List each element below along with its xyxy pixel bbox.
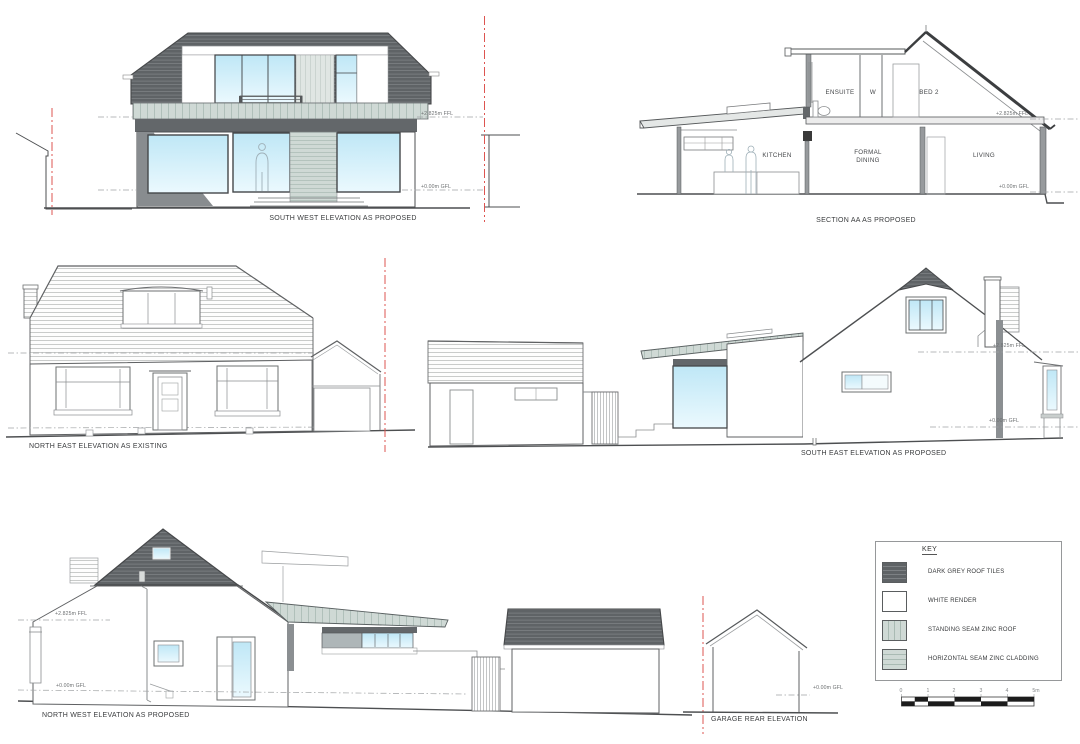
scale-tick-label: 2 [953, 688, 956, 694]
dormer-fascia [182, 46, 388, 55]
room-label-kitchen: KITCHEN [762, 152, 791, 159]
garage-dark-roof [504, 609, 664, 645]
flat-roof-upstand [785, 48, 791, 56]
garage-door [314, 388, 370, 431]
room-label-formal-dining: DINING [856, 157, 879, 164]
scale-tick-label: 4 [1006, 688, 1009, 694]
ffl-level-label: +2.825m FFL [421, 111, 453, 117]
south-west-elevation-title: SOUTH WEST ELEVATION AS PROPOSED [269, 215, 416, 222]
rooflight [153, 548, 170, 559]
white-band [322, 648, 417, 654]
kitchen-counter [714, 172, 799, 194]
ground-line [637, 194, 1064, 203]
south-west-elevation-drawing [16, 16, 520, 222]
slatted-gate [472, 657, 500, 711]
living-door [927, 137, 945, 194]
gutter-end-left [123, 75, 133, 79]
chimney-cap [23, 285, 38, 289]
room-label-ensuite: ENSUITE [826, 89, 855, 96]
scale-tick-label: 5m [1032, 688, 1039, 694]
toilet [813, 101, 830, 117]
side-door-unit [217, 637, 255, 700]
key-item-label: HORIZONTAL SEAM ZINC CLADDING [928, 656, 1039, 662]
grey-corner-column [287, 624, 294, 671]
bay-window-right [215, 366, 280, 416]
dark-fascia [322, 627, 417, 633]
north-east-elevation-drawing [6, 258, 415, 452]
garage-rear-elevation-title: GARAGE REAR ELEVATION [711, 716, 808, 723]
north-east-elevation-title: NORTH EAST ELEVATION AS EXISTING [29, 443, 168, 450]
bed2-door [893, 64, 919, 117]
garage-rear-elevation-drawing [683, 596, 838, 734]
extension-glazed-window [673, 366, 727, 428]
standing-seam-zinc-band [133, 103, 428, 119]
kitchen-clerestory-window [684, 137, 733, 150]
ffl-level-label: +2.825m FFL [996, 111, 1028, 117]
north-west-elevation-title: NORTH WEST ELEVATION AS PROPOSED [42, 712, 190, 719]
dark-fascia [673, 359, 727, 366]
standing-seam-zinc-roof-swatch [882, 620, 907, 641]
key-item-label: WHITE RENDER [928, 598, 977, 604]
side-window [154, 641, 183, 666]
flat-roof [787, 49, 905, 54]
dark-grey-roof-tiles-swatch [882, 562, 907, 583]
white-render-swatch [882, 591, 907, 612]
scale-bar [902, 694, 1035, 706]
extension-wall [727, 336, 803, 437]
gfl-level-label: +0.00m GFL [999, 184, 1029, 190]
front-door [149, 371, 191, 430]
slatted-gate [592, 392, 618, 444]
ffl-level-label: +2.825m FFL [993, 343, 1025, 349]
first-floor-slab [806, 117, 1044, 124]
south-east-elevation-drawing [428, 268, 1078, 447]
neighbour-outline-right [481, 135, 520, 207]
upper-gable-window [906, 297, 946, 333]
key-item-label: STANDING SEAM ZINC ROOF [928, 627, 1017, 633]
ground-window-right [337, 133, 400, 192]
room-label-formal-dining: FORMAL [854, 149, 882, 156]
key-row: WHITE RENDER [882, 591, 1057, 613]
scale-tick-label: 3 [980, 688, 983, 694]
gfl-level-label: +0.00m GFL [421, 184, 451, 190]
ffl-level-label: +2.825m FFL [55, 611, 87, 617]
ground-window-left [148, 135, 228, 193]
key-item-label: DARK GREY ROOF TILES [928, 569, 1004, 575]
roof-vent [139, 571, 145, 582]
horizontal-seam-zinc-cladding-swatch [882, 649, 907, 670]
external-steps [618, 424, 673, 444]
gfl-level-label: +0.00m GFL [989, 418, 1019, 424]
room-label-wardrobe: W [870, 89, 876, 96]
lower-window [842, 372, 891, 392]
level-datum-lines [1030, 119, 1078, 192]
upper-wall-panel-right [357, 55, 388, 103]
bay-window-left [54, 367, 132, 415]
living-right-wall [1040, 127, 1046, 194]
room-label-living: LIVING [973, 152, 995, 159]
key-row: DARK GREY ROOF TILES [882, 562, 1057, 584]
south-east-elevation-title: SOUTH EAST ELEVATION AS PROPOSED [801, 450, 946, 457]
gable-roof-section [905, 25, 1055, 131]
zinc-cladding-strip-entrance [290, 132, 337, 202]
porch-window [1047, 370, 1057, 410]
north-west-elevation-drawing [18, 529, 692, 715]
kitchen-left-wall [677, 127, 681, 194]
internal-wall [805, 141, 809, 194]
drawing-sheet: SOUTH WEST ELEVATION AS PROPOSED +2.825m… [0, 0, 1080, 744]
dormer-window [123, 291, 200, 328]
neighbour-clad-band [70, 558, 98, 583]
outbuilding-door [450, 390, 473, 444]
materials-key: KEY DARK GREY ROOF TILES WHITE RENDER ST… [875, 541, 1062, 681]
extension-rooflight [727, 329, 772, 338]
zinc-canopy-roof [266, 602, 448, 627]
upper-wall-panel-left [182, 55, 215, 103]
room-label-bed2: BED 2 [919, 89, 938, 96]
key-title: KEY [922, 546, 937, 555]
ensuite-left-wall [806, 52, 811, 107]
beam-section [803, 131, 812, 141]
clerestory-windows [322, 633, 413, 648]
outbuilding-clad-band [428, 341, 583, 383]
existing-garage [311, 341, 381, 431]
section-aa-title: SECTION AA AS PROPOSED [816, 217, 916, 224]
scale-tick-label: 0 [900, 688, 903, 694]
gfl-level-label: +0.00m GFL [813, 685, 843, 691]
scale-tick-label: 1 [927, 688, 930, 694]
garage [504, 609, 664, 713]
key-row: STANDING SEAM ZINC ROOF [882, 620, 1057, 642]
scale-ticks [902, 694, 1035, 697]
key-row: HORIZONTAL SEAM ZINC CLADDING [882, 649, 1057, 671]
ground-line [683, 712, 838, 713]
kitchen-mono-pitch-roof [640, 107, 805, 128]
dining-living-wall [920, 127, 925, 194]
gutter-end-right [429, 72, 439, 76]
left-buttress [29, 627, 42, 683]
gfl-level-label: +0.00m GFL [56, 683, 86, 689]
roof-vent [207, 287, 212, 299]
ground-window-centre [233, 133, 290, 192]
garage-wall [512, 649, 659, 713]
window-sill [121, 324, 202, 328]
human-figure-small [725, 149, 733, 172]
roof-behind-band [262, 551, 348, 566]
dark-fascia-band [135, 119, 417, 132]
upper-window-narrow [336, 55, 357, 103]
neighbour-outline [16, 133, 132, 209]
